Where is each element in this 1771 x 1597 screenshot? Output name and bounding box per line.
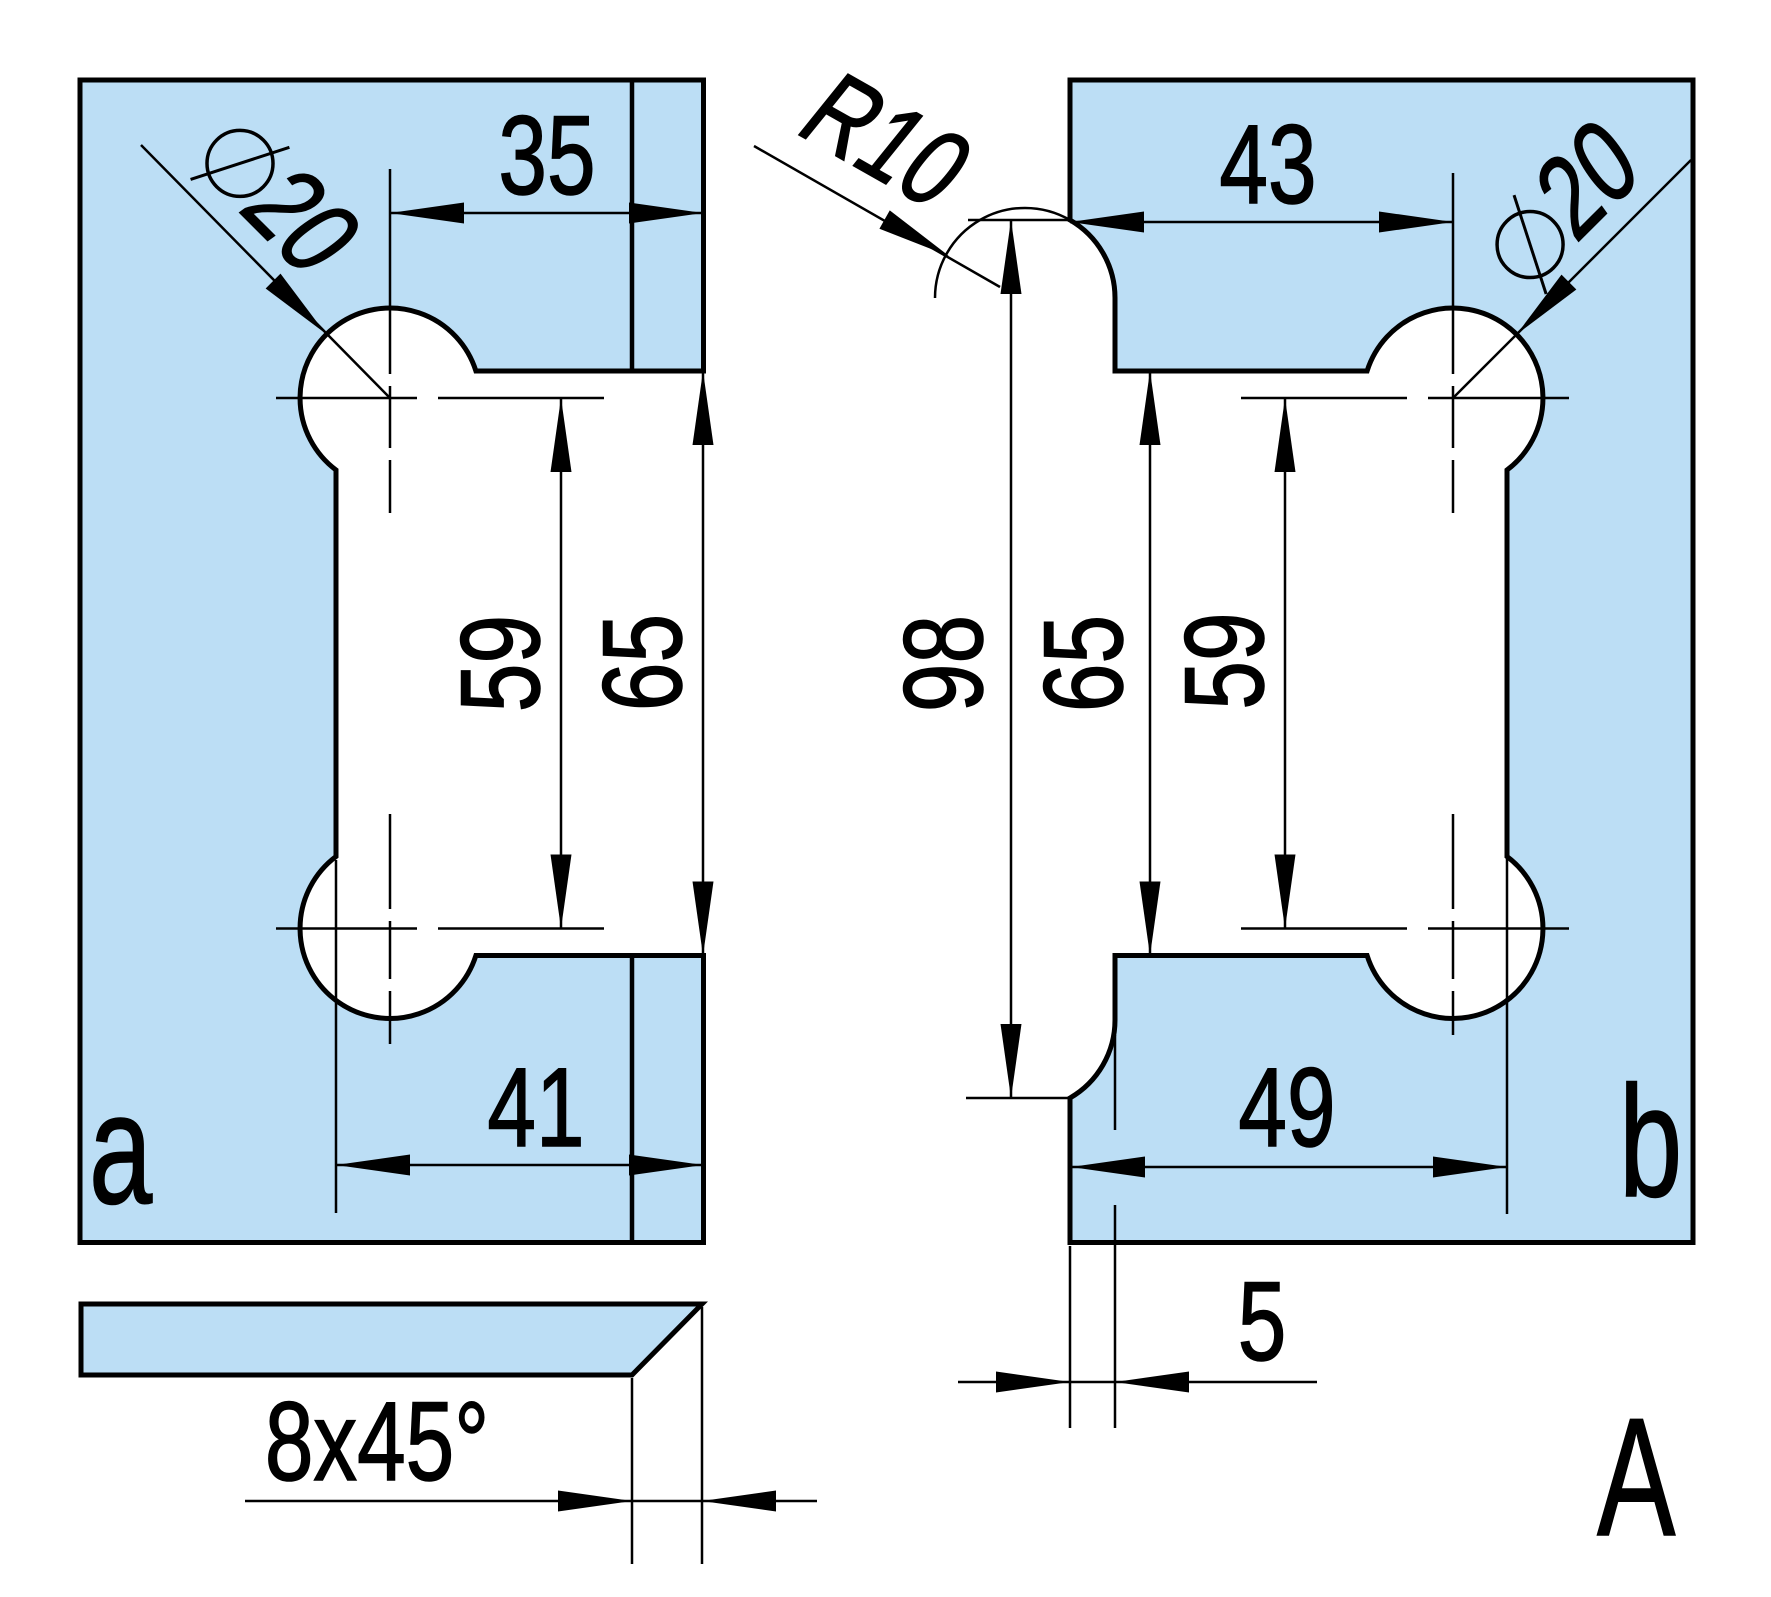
svg-text:98: 98 — [882, 615, 1007, 712]
svg-text:43: 43 — [1219, 103, 1316, 228]
svg-text:49: 49 — [1238, 1046, 1335, 1171]
svg-text:65: 65 — [581, 614, 706, 711]
svg-text:41: 41 — [487, 1046, 584, 1171]
svg-text:59: 59 — [439, 615, 564, 712]
svg-text:A: A — [1597, 1383, 1676, 1571]
svg-text:a: a — [89, 1061, 153, 1238]
svg-text:5: 5 — [1238, 1260, 1287, 1385]
svg-text:b: b — [1619, 1054, 1682, 1231]
svg-text:8x45°: 8x45° — [265, 1380, 489, 1505]
svg-text:59: 59 — [1163, 612, 1288, 709]
svg-text:35: 35 — [498, 94, 595, 219]
svg-text:65: 65 — [1022, 615, 1147, 712]
